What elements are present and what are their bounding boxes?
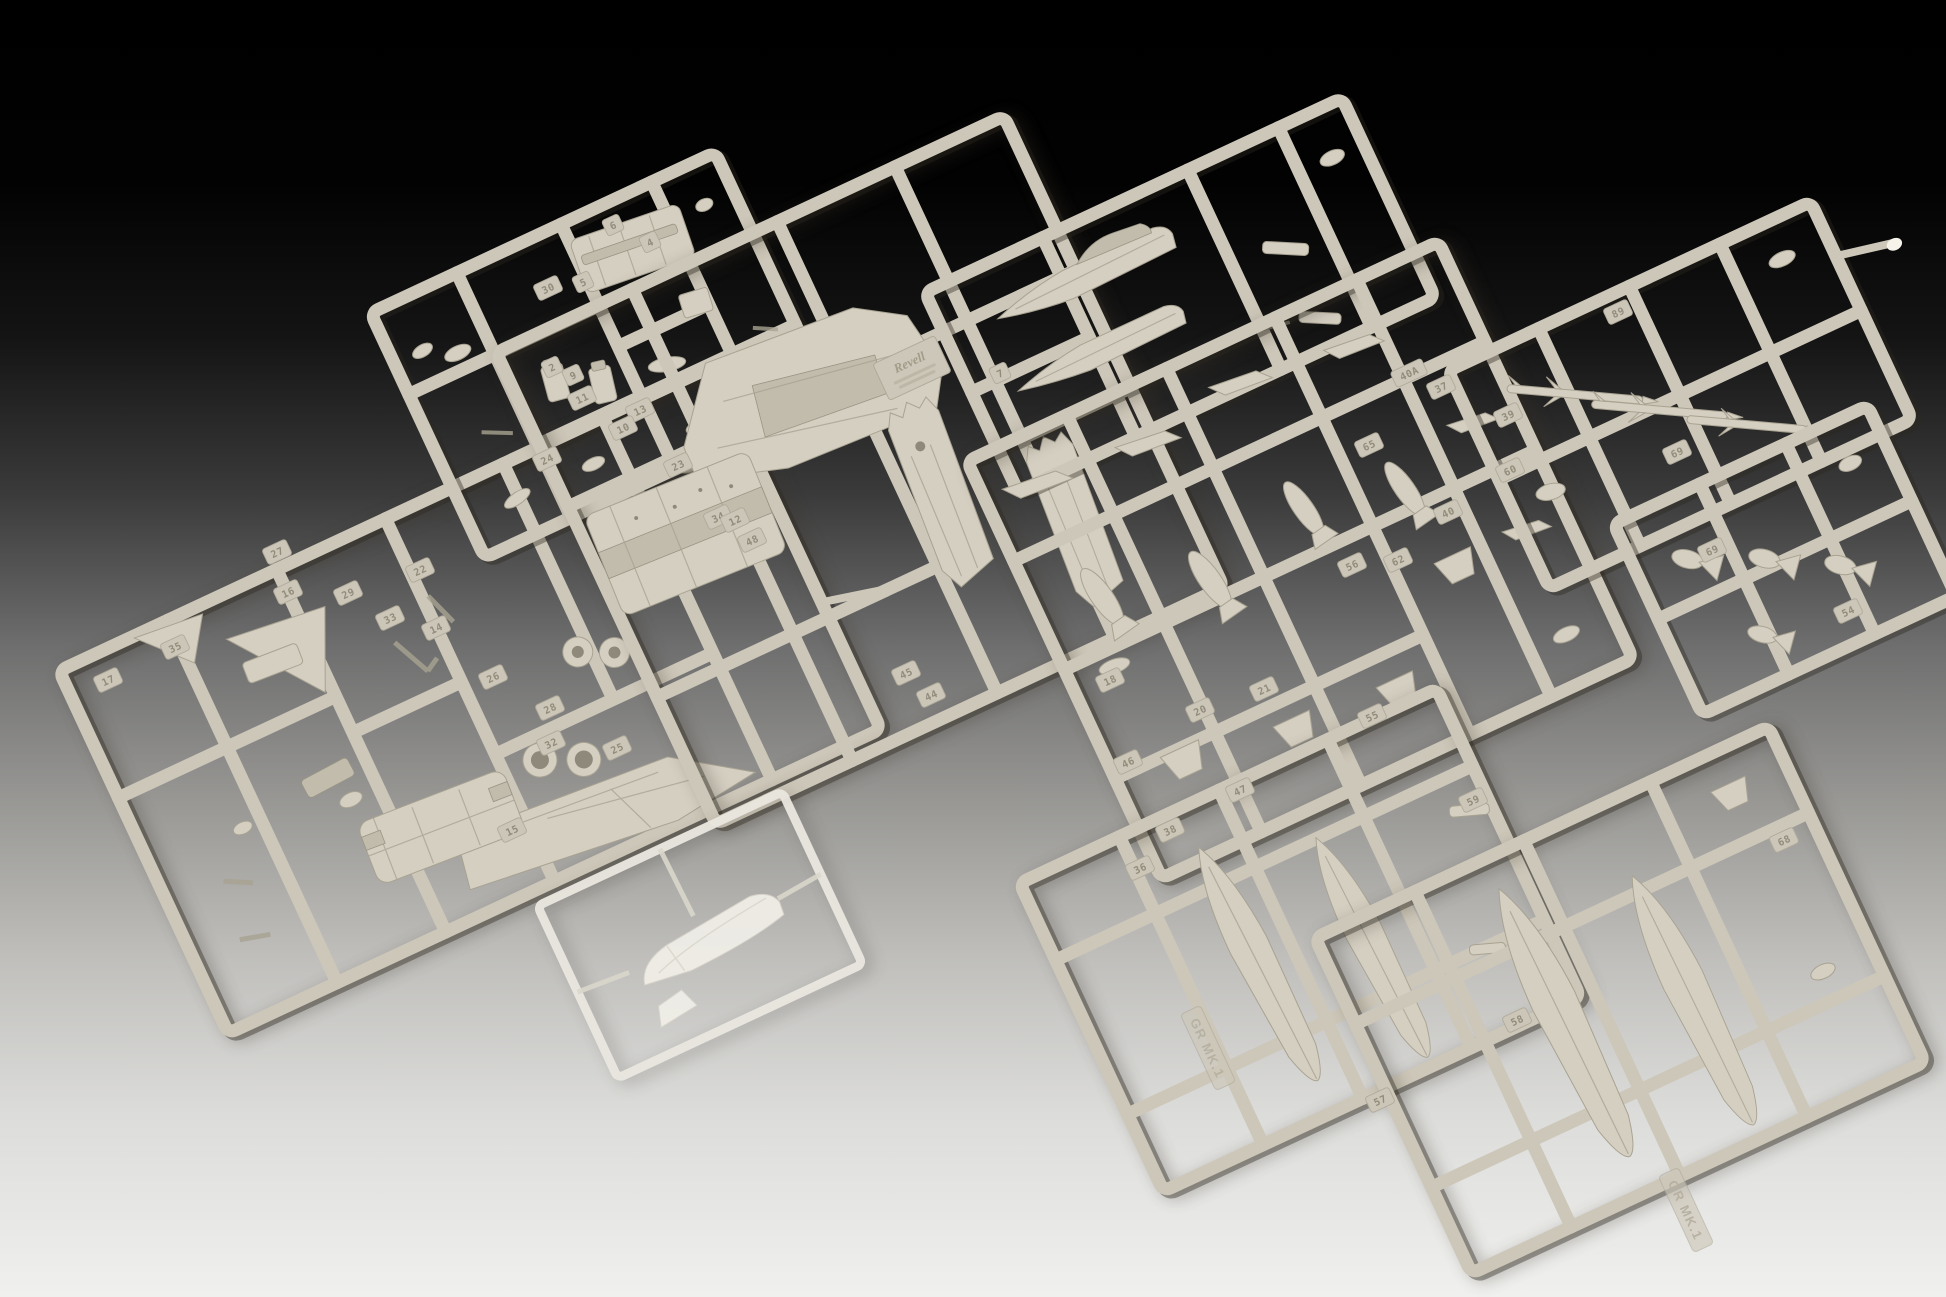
- photo-canvas: 6430529111310242334271629333517221426283…: [0, 0, 1946, 1297]
- stores-pylon: [1262, 241, 1309, 255]
- photo-stage: 6430529111310242334271629333517221426283…: [0, 0, 1946, 1297]
